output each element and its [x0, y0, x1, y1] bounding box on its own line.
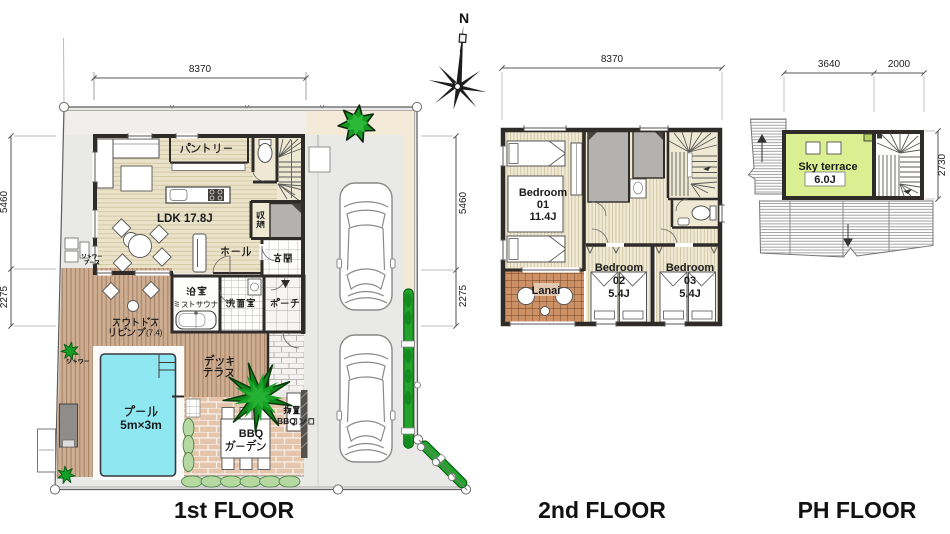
- svg-text:2000: 2000: [888, 59, 911, 70]
- svg-text:5m×3m: 5m×3m: [120, 418, 162, 432]
- svg-text:(7.4): (7.4): [146, 329, 163, 338]
- svg-text:Bedroom: Bedroom: [666, 262, 715, 274]
- svg-text:8370: 8370: [189, 64, 212, 75]
- svg-text:8370: 8370: [601, 54, 624, 65]
- svg-text:5.4J: 5.4J: [679, 288, 700, 300]
- svg-text:3640: 3640: [818, 59, 841, 70]
- svg-text:LDK 17.8J: LDK 17.8J: [157, 213, 213, 225]
- svg-text:11.4J: 11.4J: [530, 211, 557, 223]
- svg-text:2275: 2275: [458, 284, 469, 307]
- svg-text:03: 03: [684, 275, 696, 287]
- svg-text:Bedroom: Bedroom: [519, 187, 568, 199]
- svg-text:1st FLOOR: 1st FLOOR: [174, 497, 295, 523]
- svg-text:Sky terrace: Sky terrace: [798, 161, 857, 173]
- svg-text:2nd FLOOR: 2nd FLOOR: [538, 497, 666, 523]
- svg-text:6.0J: 6.0J: [814, 174, 835, 186]
- svg-text:Lanai: Lanai: [532, 285, 561, 297]
- svg-text:01: 01: [537, 199, 549, 211]
- svg-text:02: 02: [613, 275, 625, 287]
- svg-text:5460: 5460: [458, 191, 469, 214]
- svg-text:2730: 2730: [937, 153, 948, 176]
- svg-text:2275: 2275: [0, 285, 10, 308]
- svg-text:Bedroom: Bedroom: [595, 262, 644, 274]
- svg-text:N: N: [459, 10, 469, 26]
- svg-text:5460: 5460: [0, 190, 10, 213]
- svg-text:BBQ: BBQ: [239, 428, 264, 440]
- svg-text:5.4J: 5.4J: [608, 288, 629, 300]
- svg-text:PH FLOOR: PH FLOOR: [798, 497, 917, 523]
